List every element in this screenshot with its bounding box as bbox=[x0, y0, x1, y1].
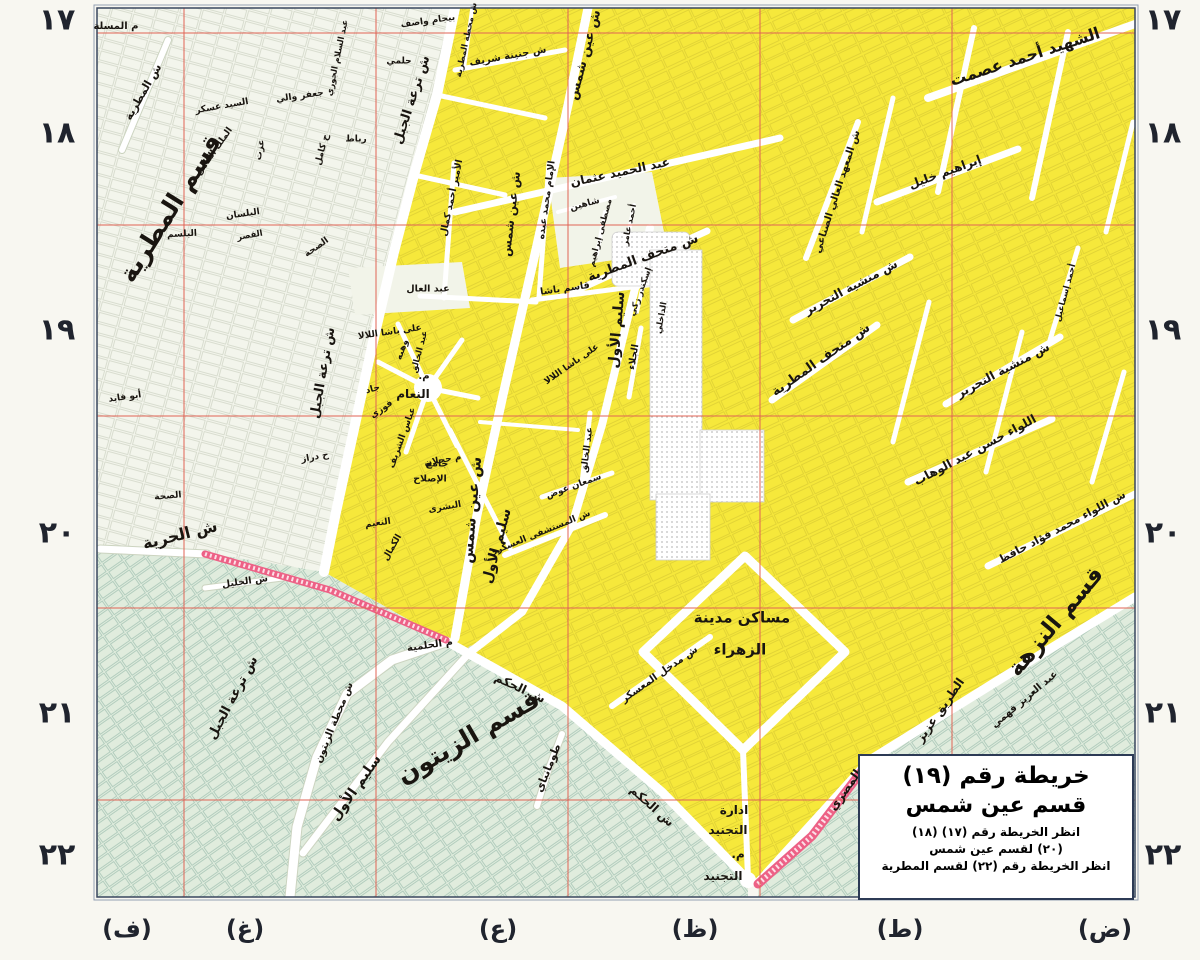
grid-row-number: ١٧ bbox=[1145, 3, 1182, 38]
grid-column-letter: (ظ) bbox=[672, 915, 719, 943]
grid-row-number: ٢٢ bbox=[1145, 838, 1182, 873]
grid-row-number: ٢٢ bbox=[39, 838, 76, 873]
grid-row-number: ١٨ bbox=[1145, 116, 1182, 151]
grid-row-number: ١٨ bbox=[39, 116, 76, 151]
legend-district-name: قسم عين شمس bbox=[860, 792, 1132, 820]
grid-row-number: ٢٠ bbox=[1145, 516, 1182, 551]
map-sheet: قسم المطريةقسم الزيتونقسم النزهةالشهيد أ… bbox=[0, 0, 1200, 960]
grid-row-number: ١٩ bbox=[39, 313, 76, 348]
grid-row-number: ٢١ bbox=[39, 696, 76, 731]
grid-column-letter: (ط) bbox=[877, 915, 924, 943]
grid-column-letter: (غ) bbox=[226, 915, 264, 943]
grid-row-number: ٢٠ bbox=[39, 516, 76, 551]
grid-row-number: ١٧ bbox=[39, 3, 76, 38]
legend-map-number: خريطة رقم (١٩) bbox=[860, 761, 1132, 792]
map-legend-box: خريطة رقم (١٩) قسم عين شمس انظر الخريطة … bbox=[858, 754, 1134, 900]
legend-note-2: (٢٠) لقسم عين شمس bbox=[860, 841, 1132, 858]
grid-column-letter: (ع) bbox=[479, 915, 517, 943]
grid-column-letter: (ف) bbox=[102, 915, 152, 943]
legend-note-1: انظر الخريطة رقم (١٧) (١٨) bbox=[860, 824, 1132, 841]
grid-row-number: ٢١ bbox=[1145, 696, 1182, 731]
grid-row-number: ١٩ bbox=[1145, 313, 1182, 348]
legend-note-3: انظر الخريطة رقم (٢٢) لقسم المطرية bbox=[860, 858, 1132, 875]
grid-column-letter: (ض) bbox=[1078, 915, 1132, 943]
naam-roundabout bbox=[414, 374, 442, 402]
